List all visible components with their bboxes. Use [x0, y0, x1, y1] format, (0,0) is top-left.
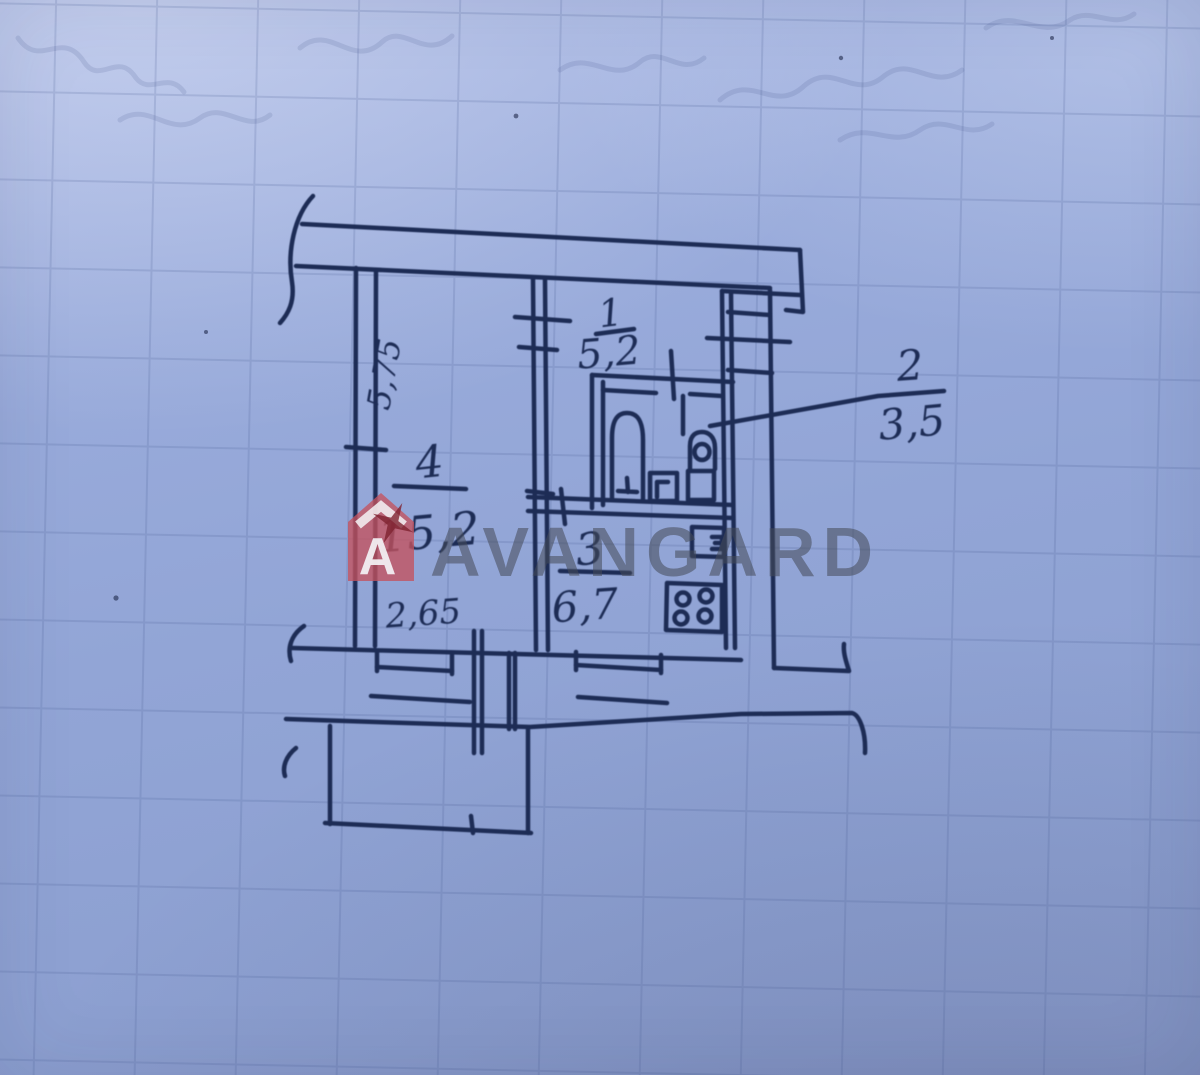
- bathtub-drain-mark: [618, 478, 637, 492]
- stove-burner: [699, 610, 712, 623]
- window-room4-rung-upper: [377, 667, 452, 671]
- bottom-wall: [284, 626, 865, 776]
- entry-lintel-line: [722, 291, 800, 295]
- left-wall-tick: [346, 447, 386, 450]
- left-wall-inner-line: [375, 270, 376, 646]
- balcony-tick: [471, 816, 473, 833]
- handwriting-smudge: [840, 124, 992, 140]
- toilet-tank: [688, 471, 714, 500]
- bottom-right-corner: [774, 644, 849, 671]
- partition-kitchen-tick: [527, 491, 553, 494]
- dimension-left-wall: 5,75: [359, 336, 409, 413]
- dust-speck: [1050, 36, 1054, 40]
- window-room4-rung-lower: [371, 696, 470, 702]
- top-wall-right-end: [786, 250, 803, 312]
- top-wall-outer-line: [302, 224, 800, 250]
- dust-speck: [204, 330, 208, 334]
- room2-number: 2: [894, 340, 925, 391]
- stove-burner: [675, 612, 688, 625]
- floor-plan-photo: 1 5,2 2 3,5 3 6,7 4 15,2 5,75 2,65 A AVA…: [0, 0, 1200, 1075]
- entry-door-line-upper: [728, 312, 770, 315]
- entry-door-line-lower: [728, 370, 772, 373]
- room1-area: 5,2: [575, 327, 642, 378]
- window-kitchen-rung-lower: [578, 697, 667, 703]
- balcony-outline: [325, 726, 531, 833]
- partition-line-left: [533, 278, 536, 650]
- outer-right-wall: [770, 290, 774, 668]
- bathroom-sink-detail: [657, 482, 668, 497]
- bleed-through-handwriting: [18, 14, 1134, 140]
- wall-break-mark-top-left: [280, 196, 313, 323]
- partition-door-tick-lower: [519, 347, 557, 350]
- handwriting-smudge: [300, 36, 452, 51]
- bathroom-sink-outline: [650, 473, 677, 501]
- room2-area: 3,5: [876, 395, 947, 450]
- partition-door-tick-upper: [515, 317, 570, 321]
- stove-burner: [677, 593, 690, 606]
- balcony-door: [474, 631, 515, 753]
- dust-speck: [113, 595, 118, 600]
- toilet-icon: [688, 432, 715, 500]
- bathroom-top-wall-inner-b: [690, 394, 722, 396]
- room4-number: 4: [412, 436, 446, 490]
- wall-break-mark-bottom-left-a: [290, 626, 304, 661]
- bathroom-top-wall-inner-a: [603, 390, 656, 393]
- top-wall: [280, 196, 803, 323]
- room4-underline: [394, 486, 466, 489]
- logo-letter: A: [359, 528, 404, 586]
- bathroom-top-wall-outer: [592, 375, 733, 382]
- dimension-room4-width: 2,65: [383, 591, 462, 636]
- handwriting-smudge: [720, 69, 962, 100]
- stove-burner: [700, 590, 713, 603]
- watermark-brand-text: AVANGARD: [430, 513, 880, 591]
- block-right-wall-right-line: [731, 293, 735, 648]
- bathroom-door-tick: [671, 351, 674, 399]
- handwriting-smudge: [120, 113, 270, 125]
- bathroom-sink-icon: [650, 473, 677, 501]
- wall-break-mark-bottom-left-b: [284, 748, 296, 776]
- handwriting-smudge: [560, 57, 704, 71]
- balcony-bottom-edge: [325, 823, 531, 833]
- entry-door-tick: [707, 338, 790, 342]
- window-room4: [371, 652, 470, 702]
- handwriting-smudge: [18, 38, 184, 92]
- partition-line-right: [545, 280, 548, 650]
- dust-speck: [514, 114, 519, 119]
- dust-speck: [839, 56, 843, 60]
- left-wall-outer-line: [355, 268, 356, 646]
